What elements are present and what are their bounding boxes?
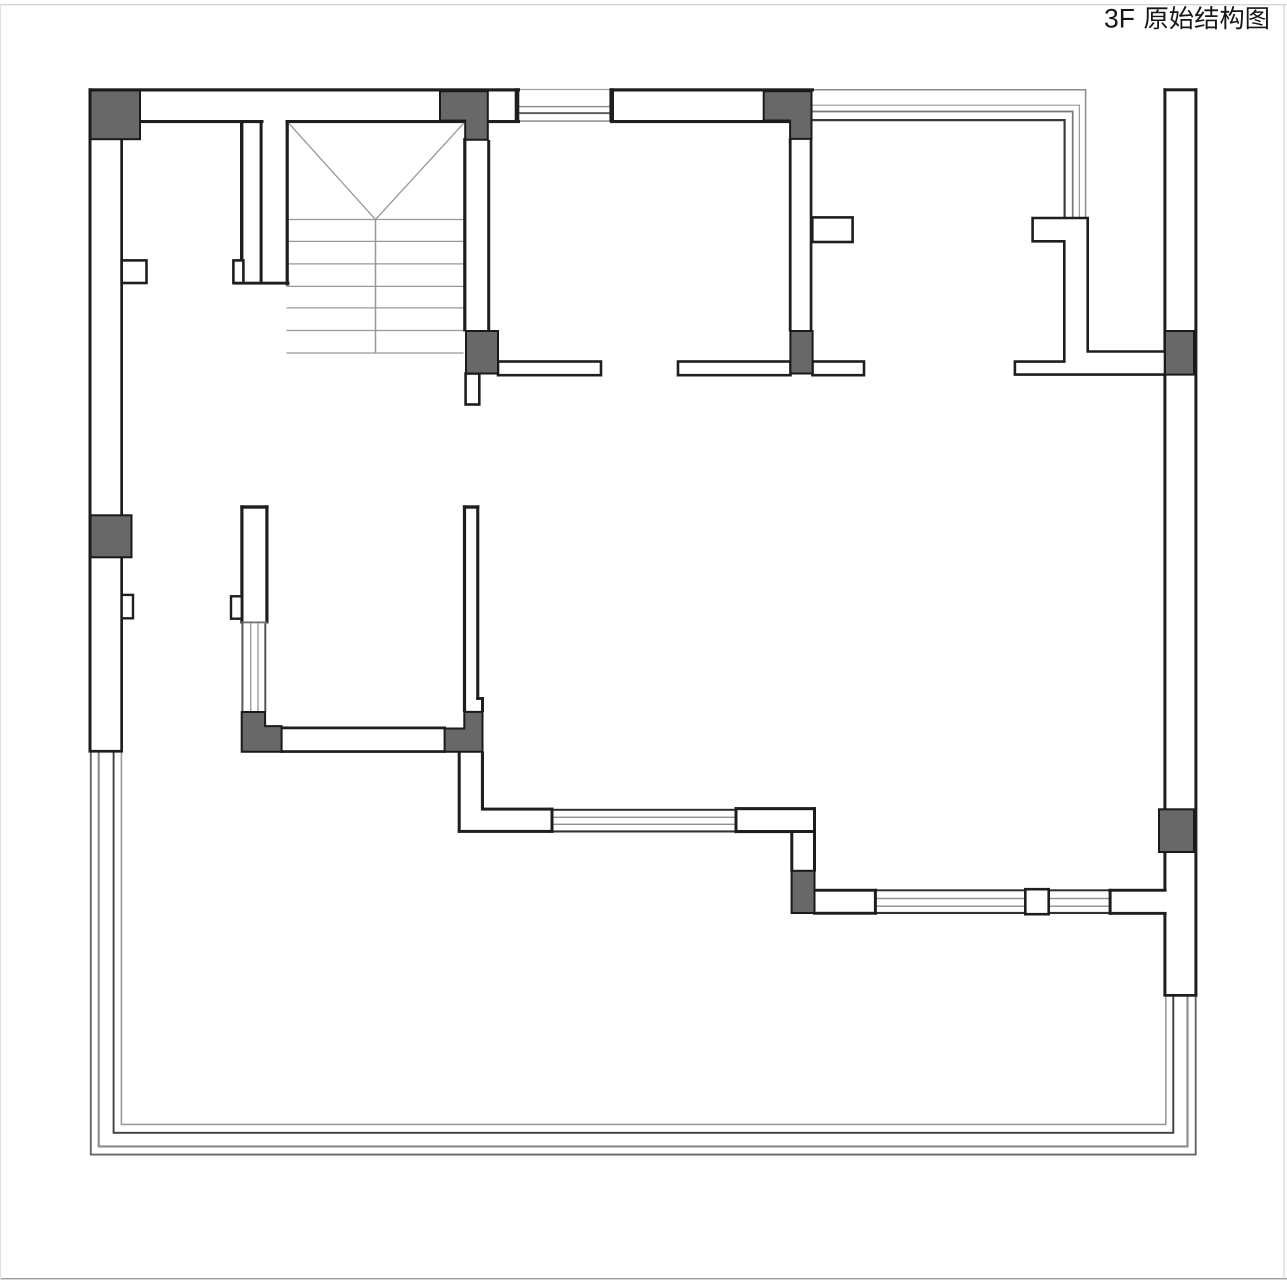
svg-text:3F: 3F [1104,4,1135,34]
